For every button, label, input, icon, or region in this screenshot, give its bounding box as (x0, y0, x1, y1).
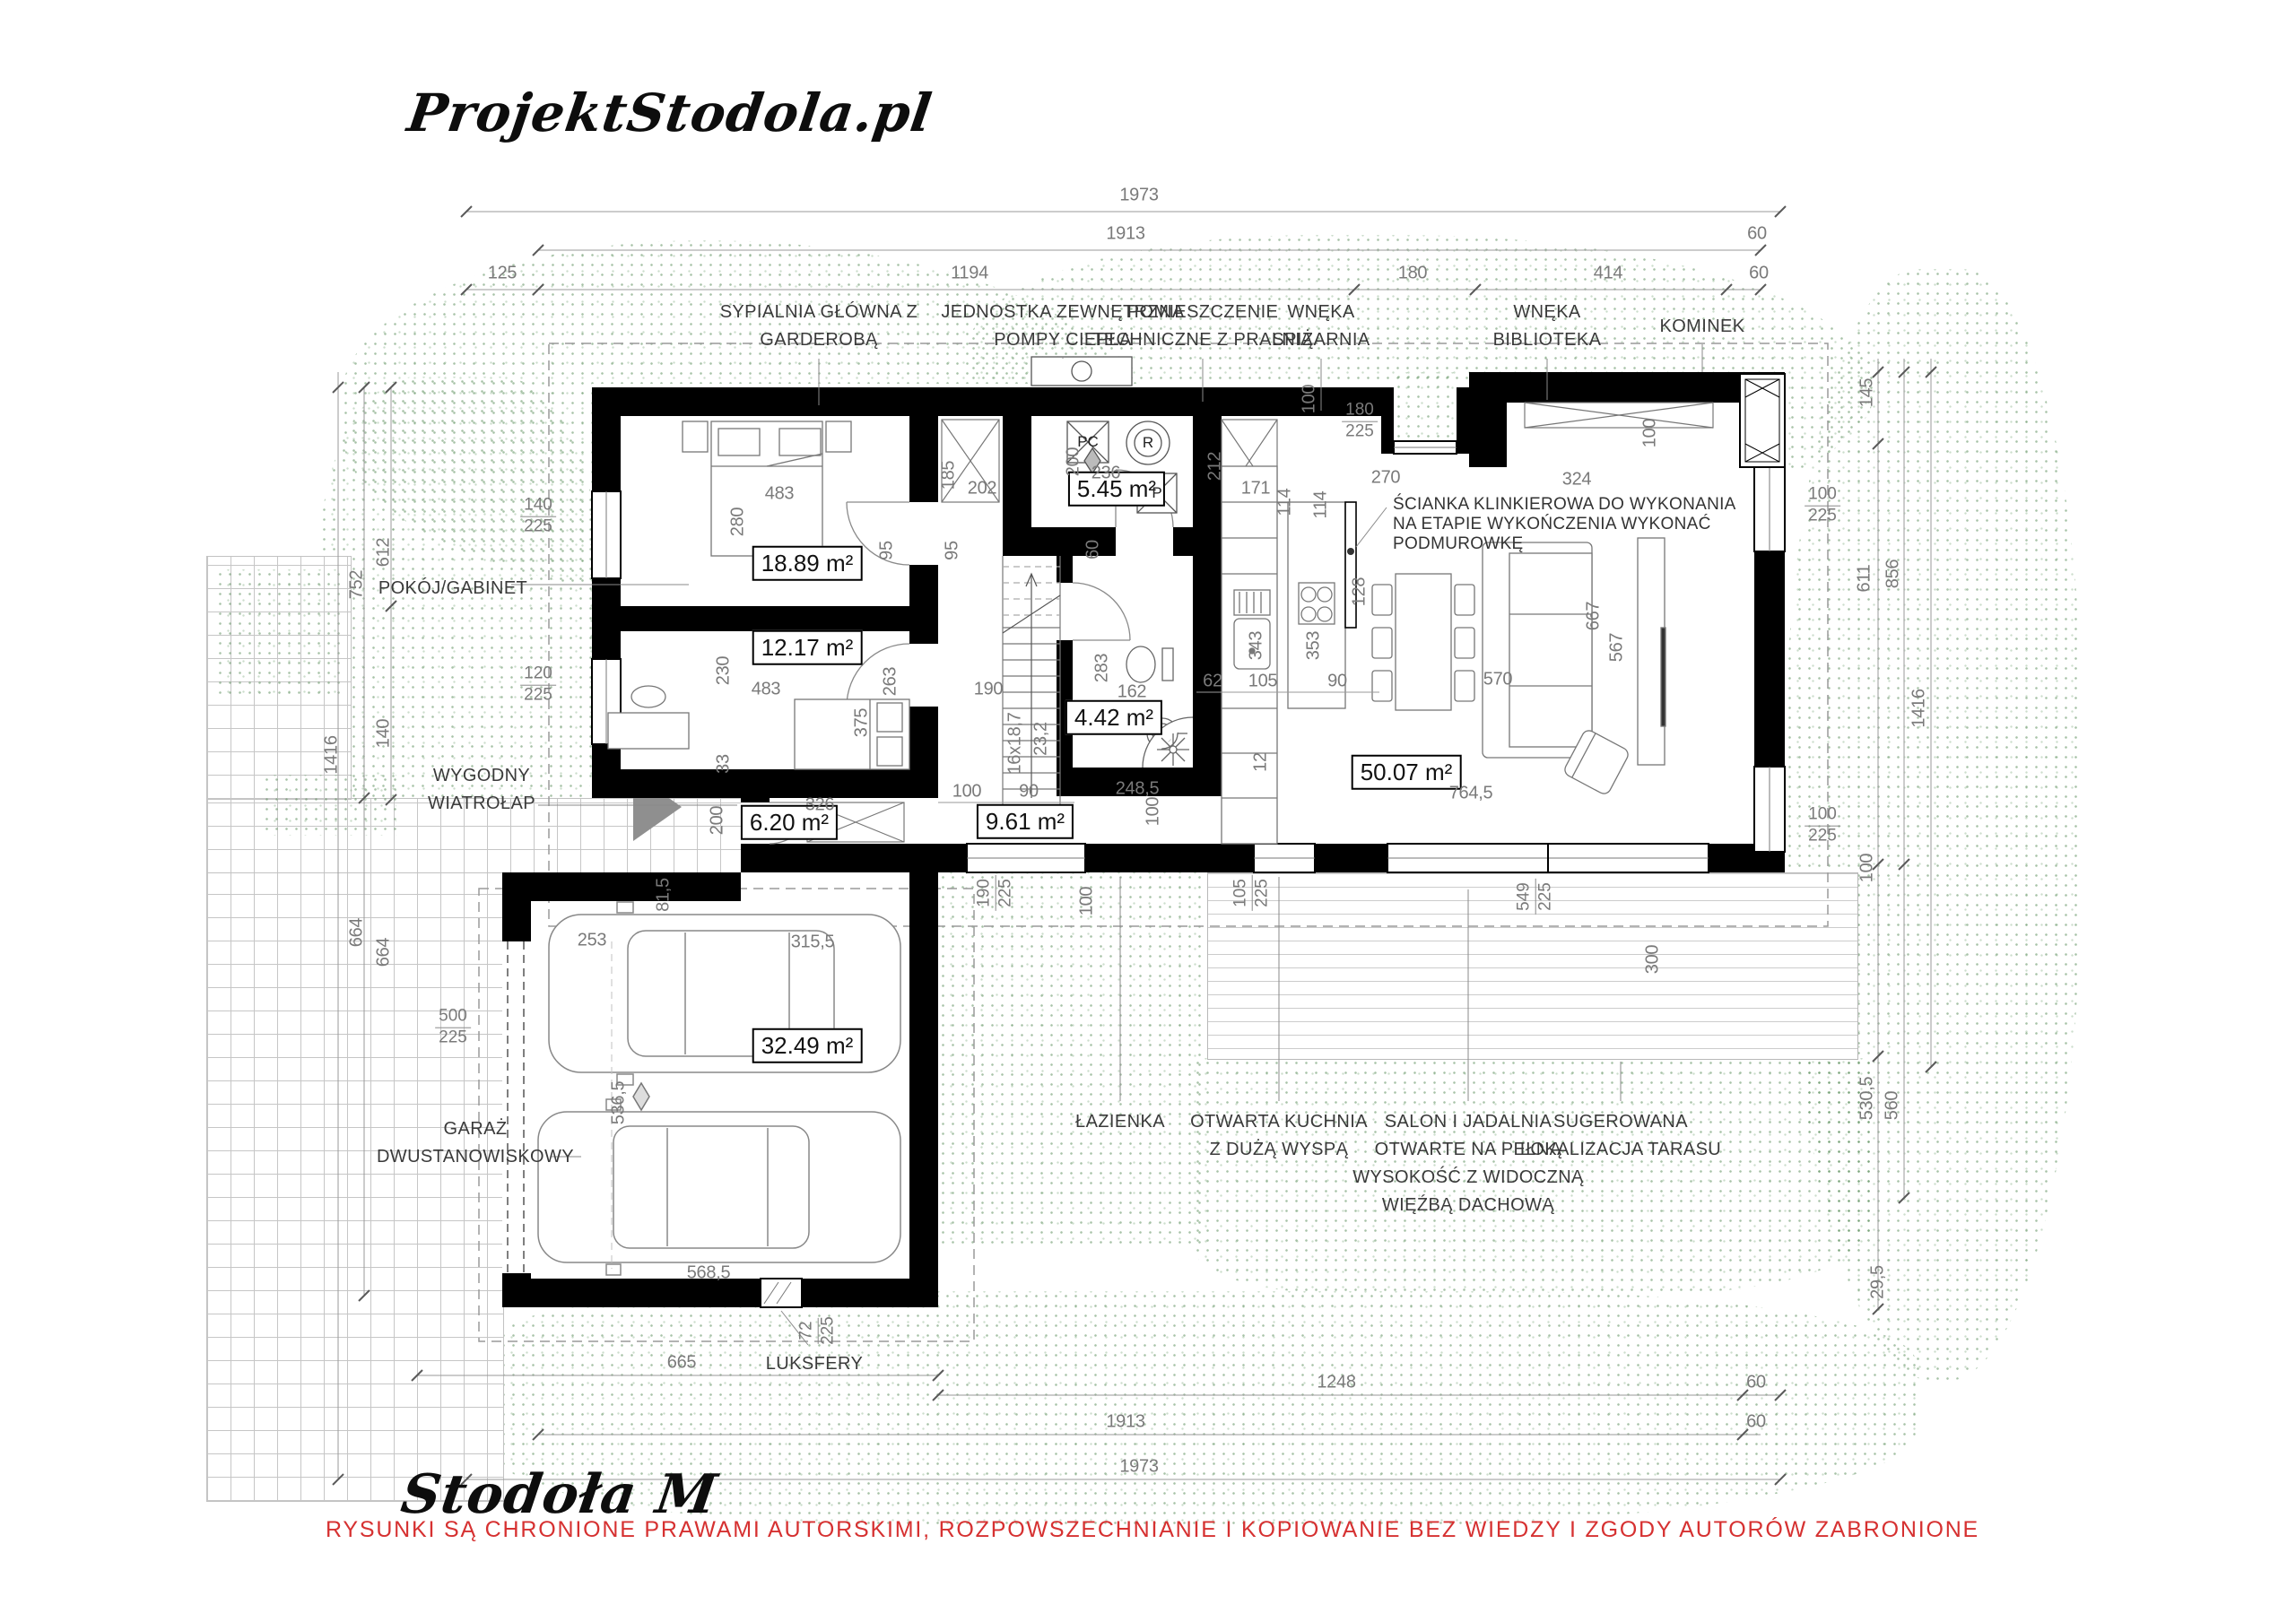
size-height: 225 (520, 517, 556, 538)
window-size: 180225 (1342, 401, 1378, 443)
dim-label: 60 (1746, 1412, 1766, 1433)
size-height: 225 (1253, 875, 1274, 911)
dim-label: 1973 (1119, 186, 1158, 206)
callout-line: LOKALIZACJA TARASU (1520, 1136, 1721, 1164)
logo: ProjektStodola.pl (404, 82, 935, 143)
callout-luksfery: LUKSFERY (766, 1350, 863, 1378)
callout-garaz: GARAŻDWUSTANOWISKOWY (377, 1115, 574, 1171)
dim-label: 95 (943, 541, 963, 560)
drawing-element (909, 502, 938, 565)
dim-label: 200 (1064, 447, 1084, 476)
drawing-element (592, 387, 1381, 416)
dim-label: 81,5 (654, 878, 674, 912)
callout-line: KOMINEK (1659, 313, 1744, 341)
masonry-note: ŚCIANKA KLINKIEROWA DO WYKONANIANA ETAPI… (1393, 495, 1736, 554)
garage-door-size: 500225 (435, 1007, 471, 1049)
callout-line: SUGEROWANA (1520, 1108, 1721, 1136)
dim-label: 1416 (1909, 689, 1930, 727)
dim-label: 90 (1327, 672, 1347, 692)
callout-line: OTWARTA KUCHNIA (1190, 1108, 1368, 1136)
drawing-element (1356, 507, 1387, 547)
callout-line: POKÓJ/GABINET (378, 575, 527, 603)
dim-label: 1913 (1106, 1412, 1144, 1433)
size-height: 225 (1536, 879, 1557, 915)
drawing-element (633, 1083, 649, 1110)
drawing-element (1372, 628, 1392, 658)
size-height: 225 (520, 686, 556, 707)
dim-label: 530,5 (1857, 1077, 1878, 1121)
drawing-element (1003, 527, 1222, 556)
drawing-element (1318, 587, 1332, 602)
drawing-element (1455, 585, 1474, 615)
callout-line: ŁAZIENKA (1075, 1108, 1165, 1136)
garage-cars (538, 902, 900, 1275)
drawing-element (606, 1264, 621, 1275)
dim-label: 375 (852, 708, 873, 737)
dim-label: 353 (1304, 631, 1325, 660)
drawing-element (592, 769, 938, 798)
dim-label: 324 (1562, 470, 1591, 490)
dim-label: 60 (1746, 1373, 1766, 1393)
size-height: 225 (435, 1028, 471, 1049)
area-sypialnia: 18.89 m² (752, 546, 863, 581)
size-height: 225 (819, 1313, 839, 1349)
dim-label: 145 (1857, 378, 1878, 407)
callout-otwarta-kuchnia: OTWARTA KUCHNIAZ DUŻĄ WYSPĄ (1190, 1108, 1368, 1164)
callout-line: WYGODNY (428, 762, 535, 790)
callout-lazienka: ŁAZIENKA (1075, 1108, 1165, 1136)
dim-label: 664 (374, 938, 395, 967)
size-height: 225 (1342, 422, 1378, 443)
dim-label: 212 (1205, 452, 1226, 481)
callout-line: DWUSTANOWISKOWY (377, 1143, 574, 1171)
callout-line: LUKSFERY (766, 1350, 863, 1378)
dim-label: 752 (347, 570, 368, 599)
dim-label: 270 (1371, 468, 1400, 489)
size-height: 225 (1805, 827, 1840, 847)
drawing-element (1347, 548, 1354, 555)
drawing-element (909, 644, 938, 707)
drawing-element (1469, 372, 1507, 467)
drawing-element (877, 703, 902, 732)
dim-label: 343 (1247, 631, 1267, 660)
drawing-element (718, 429, 760, 455)
dim-label: 570 (1483, 670, 1512, 690)
callout-pokoj-gabinet: POKÓJ/GABINET (378, 575, 527, 603)
drawing-element (1345, 502, 1356, 628)
drawing-element (1318, 607, 1332, 621)
drawing-element (1455, 671, 1474, 701)
callout-kominek: KOMINEK (1659, 313, 1744, 341)
size-width: 100 (1805, 805, 1840, 827)
size-width: 72 (797, 1317, 819, 1343)
drawing-element (1057, 583, 1073, 640)
window-size: 72225 (797, 1313, 839, 1349)
dim-label: 33 (714, 754, 735, 774)
dim-label: 100 (952, 782, 981, 802)
drawing-element (608, 713, 689, 749)
drawing-element (1126, 646, 1155, 682)
dim-label: 283 (1092, 654, 1113, 682)
dim-label: 856 (1883, 559, 1904, 588)
callout-line: GARDEROBĄ (720, 326, 918, 354)
drawing-element (1661, 628, 1665, 726)
dim-label: 60 (1747, 224, 1767, 245)
dim-label: 1973 (1119, 1457, 1158, 1478)
size-width: 140 (520, 496, 556, 517)
fireplace (1740, 374, 1785, 467)
symbol-p-washer: P (1152, 484, 1161, 502)
callout-line: WYSOKOŚĆ Z WIDOCZNĄ (1352, 1164, 1584, 1192)
floor-plan-sheet: ProjektStodola.pl Stodoła M RYSUNKI SĄ C… (0, 0, 2296, 1622)
size-width: 190 (975, 875, 996, 911)
dim-label: 612 (374, 538, 395, 567)
size-height: 225 (1805, 507, 1840, 527)
dim-label: 1194 (951, 264, 988, 284)
dim-label: 483 (752, 680, 780, 700)
drawing-element (502, 872, 741, 901)
dim-label: 667 (1584, 602, 1605, 630)
drawing-element (909, 872, 938, 1307)
dim-label: 125 (488, 264, 517, 284)
callout-line: SPIŻARNIA (1272, 326, 1370, 354)
window-size: 100225 (1805, 485, 1840, 527)
dim-label: 567 (1607, 633, 1628, 662)
area-lazienka: 4.42 m² (1065, 700, 1162, 735)
drawing-element (621, 606, 938, 631)
window-size: 100225 (1805, 805, 1840, 847)
dim-label: 560 (1883, 1091, 1903, 1120)
dim-label: 60 (1749, 264, 1769, 284)
area-hol: 9.61 m² (977, 804, 1074, 839)
drawing-element (826, 421, 851, 452)
callout-sypialnia: SYPIALNIA GŁÓWNA ZGARDEROBĄ (720, 299, 918, 354)
size-width: 180 (1342, 401, 1378, 422)
dim-label: 280 (728, 507, 749, 536)
drawing-element (1457, 387, 1469, 454)
dim-label: 128 (1350, 577, 1370, 606)
dim-label: 90 (1019, 782, 1039, 802)
dim-label: 100 (1857, 854, 1878, 882)
drawing-element (909, 416, 938, 798)
dim-label: 16x18,7 (1005, 712, 1026, 774)
dim-label: 315,5 (791, 932, 835, 953)
drawing-element (617, 902, 633, 913)
size-width: 120 (520, 664, 556, 686)
dim-label: 1913 (1106, 224, 1144, 245)
dim-label: 95 (877, 541, 898, 560)
dim-label: 100 (1300, 385, 1320, 413)
kitchen-fixtures (1222, 466, 1356, 844)
dim-label: 100 (1077, 887, 1098, 915)
window-size: 140225 (520, 496, 556, 538)
dim-label: 190 (974, 680, 1003, 700)
dim-label: 60 (1083, 540, 1104, 559)
callout-wiatrolap: WYGODNYWIATROŁAP (428, 762, 535, 818)
drawing-element (1170, 746, 1177, 753)
drawing-element (1372, 671, 1392, 701)
size-height: 225 (996, 875, 1017, 911)
dim-label: 664 (347, 918, 368, 947)
drawing-element (613, 1126, 809, 1248)
drawing-element (1396, 574, 1451, 710)
callout-wneka-biblioteka: WNĘKABIBLIOTEKA (1493, 299, 1602, 354)
drawing-element (1072, 361, 1091, 381)
drawing-element (1745, 379, 1779, 462)
note-line: PODMUROWKĘ (1393, 534, 1736, 554)
note-line: ŚCIANKA KLINKIEROWA DO WYKONANIA (1393, 495, 1736, 515)
drawing-element (761, 1279, 802, 1307)
dim-label: 185 (939, 461, 960, 490)
callout-line: WNĘKA (1493, 299, 1602, 326)
size-width: 549 (1515, 879, 1536, 915)
drawing-element (683, 421, 708, 452)
dim-label: 105 (1248, 672, 1277, 692)
callout-line: SYPIALNIA GŁÓWNA Z (720, 299, 918, 326)
symbol-pc-heat-pump: PC (1077, 433, 1099, 451)
area-garaz: 32.49 m² (752, 1028, 863, 1063)
drawing-element (877, 737, 902, 766)
dim-label: 1248 (1317, 1373, 1355, 1393)
dim-label: 483 (765, 484, 794, 505)
dim-label: 568,5 (687, 1263, 731, 1284)
callout-line: Z DUŻĄ WYSPĄ (1190, 1136, 1368, 1164)
dim-label: 230 (714, 656, 735, 685)
drawing-element (779, 429, 821, 455)
window-size: 549225 (1515, 879, 1557, 915)
dim-label: 23,2 (1031, 722, 1052, 756)
dim-label: 29,5 (1868, 1265, 1889, 1299)
dim-label: 100 (1144, 797, 1164, 826)
drawing-element (1455, 628, 1474, 658)
dim-label: 140 (374, 719, 395, 748)
dim-label: 236 (1091, 464, 1120, 484)
dim-label: 414 (1594, 264, 1622, 284)
dim-label: 764,5 (1449, 784, 1493, 804)
drawing-element (1372, 585, 1392, 615)
callout-taras: SUGEROWANALOKALIZACJA TARASU (1520, 1108, 1721, 1164)
size-width: 100 (1805, 485, 1840, 507)
window-size: 105225 (1231, 875, 1274, 911)
callout-line: GARAŻ (377, 1115, 574, 1143)
drawing-element (631, 686, 665, 707)
dim-label: 162 (1118, 682, 1146, 703)
dim-label: 253 (578, 931, 606, 951)
callout-line: BIBLIOTEKA (1493, 326, 1602, 354)
size-width: 105 (1231, 875, 1253, 911)
dim-label: 536,5 (609, 1081, 630, 1125)
dim-label: 100 (1640, 419, 1661, 447)
dim-label: 114 (1311, 491, 1332, 519)
callout-line: WNĘKA (1272, 299, 1370, 326)
drawing-element (1301, 607, 1316, 621)
dim-label: 114 (1275, 489, 1296, 516)
dim-label: 263 (881, 667, 901, 696)
dim-label: 611 (1855, 565, 1875, 593)
drawing-element (1301, 587, 1316, 602)
dim-label: 180 (1398, 264, 1427, 284)
callout-line: WIĘŹBĄ DACHOWĄ (1352, 1192, 1584, 1219)
area-salon: 50.07 m² (1352, 755, 1462, 790)
note-line: NA ETAPIE WYKOŃCZENIA WYKONAĆ (1393, 515, 1736, 534)
dim-label: 326 (805, 795, 834, 816)
drawing-element (1162, 648, 1173, 681)
drawing-element (1509, 553, 1592, 747)
dim-label: 300 (1643, 945, 1664, 974)
drawing-element (1073, 583, 1130, 640)
window-size: 190225 (975, 875, 1017, 911)
dim-label: 202 (968, 479, 996, 499)
dim-label: 12 (1251, 752, 1272, 772)
symbol-r-distributor: R (1143, 434, 1153, 452)
size-width: 500 (435, 1007, 471, 1028)
dim-label: 200 (708, 806, 728, 835)
callout-wneka-spizarnia: WNĘKASPIŻARNIA (1272, 299, 1370, 354)
callout-line: WIATROŁAP (428, 790, 535, 818)
window-size: 120225 (520, 664, 556, 707)
dim-label: 62 (1203, 672, 1222, 692)
drawing-element (1116, 527, 1173, 556)
copyright-notice: RYSUNKI SĄ CHRONIONE PRAWAMI AUTORSKIMI,… (326, 1517, 1979, 1543)
dim-label: 665 (667, 1353, 696, 1374)
area-pokoj: 12.17 m² (752, 630, 863, 665)
dim-label: 1416 (322, 735, 343, 774)
dim-label: 171 (1241, 479, 1270, 499)
drawing-element (1381, 387, 1394, 454)
drawing-element (502, 941, 531, 1273)
